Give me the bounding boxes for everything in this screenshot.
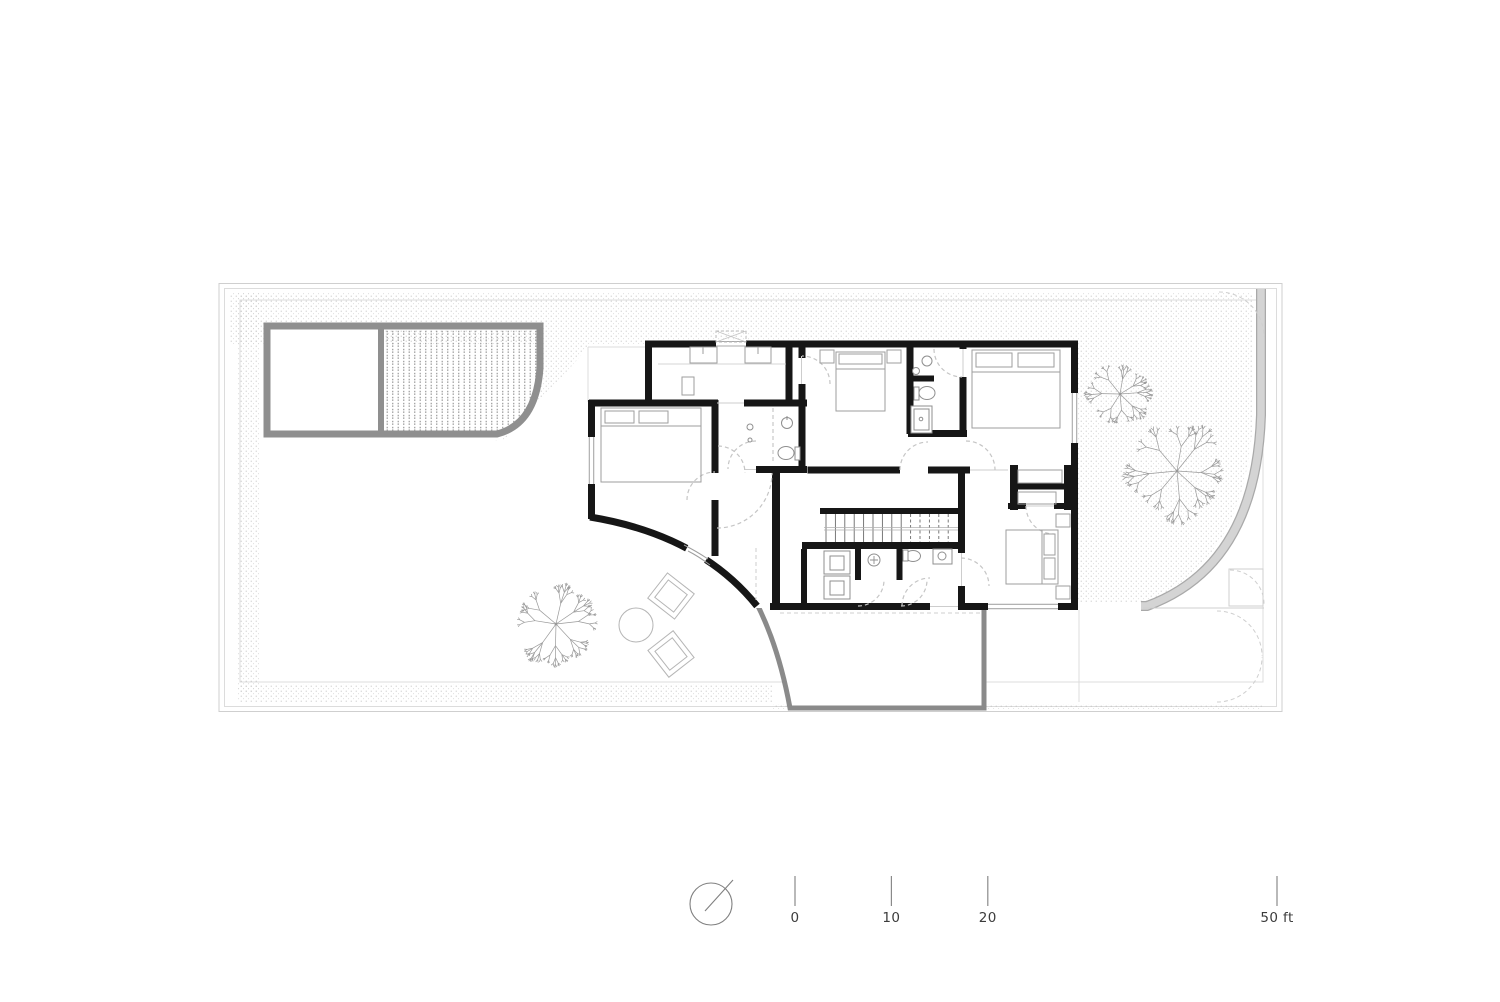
floor-plan-drawing: 0102050 ft [0, 0, 1500, 1002]
house [588, 331, 1078, 609]
tree-icon [517, 583, 597, 668]
north-arrow-icon [690, 880, 733, 925]
scale-tick-label: 0 [791, 910, 800, 926]
garden-texture [1078, 292, 1253, 603]
pool-deck [381, 326, 540, 434]
scale-tick-label: 50 ft [1260, 910, 1293, 926]
scale-bar: 0102050 ft [791, 876, 1294, 926]
pool-water [267, 326, 381, 434]
scale-tick-label: 10 [882, 910, 900, 926]
pool [267, 326, 540, 434]
garden-table [619, 608, 653, 642]
scale-tick-label: 20 [979, 910, 997, 926]
floor-plan-page: 0102050 ft [0, 0, 1500, 1002]
lounge-chair [648, 631, 694, 677]
terrace [757, 604, 984, 708]
